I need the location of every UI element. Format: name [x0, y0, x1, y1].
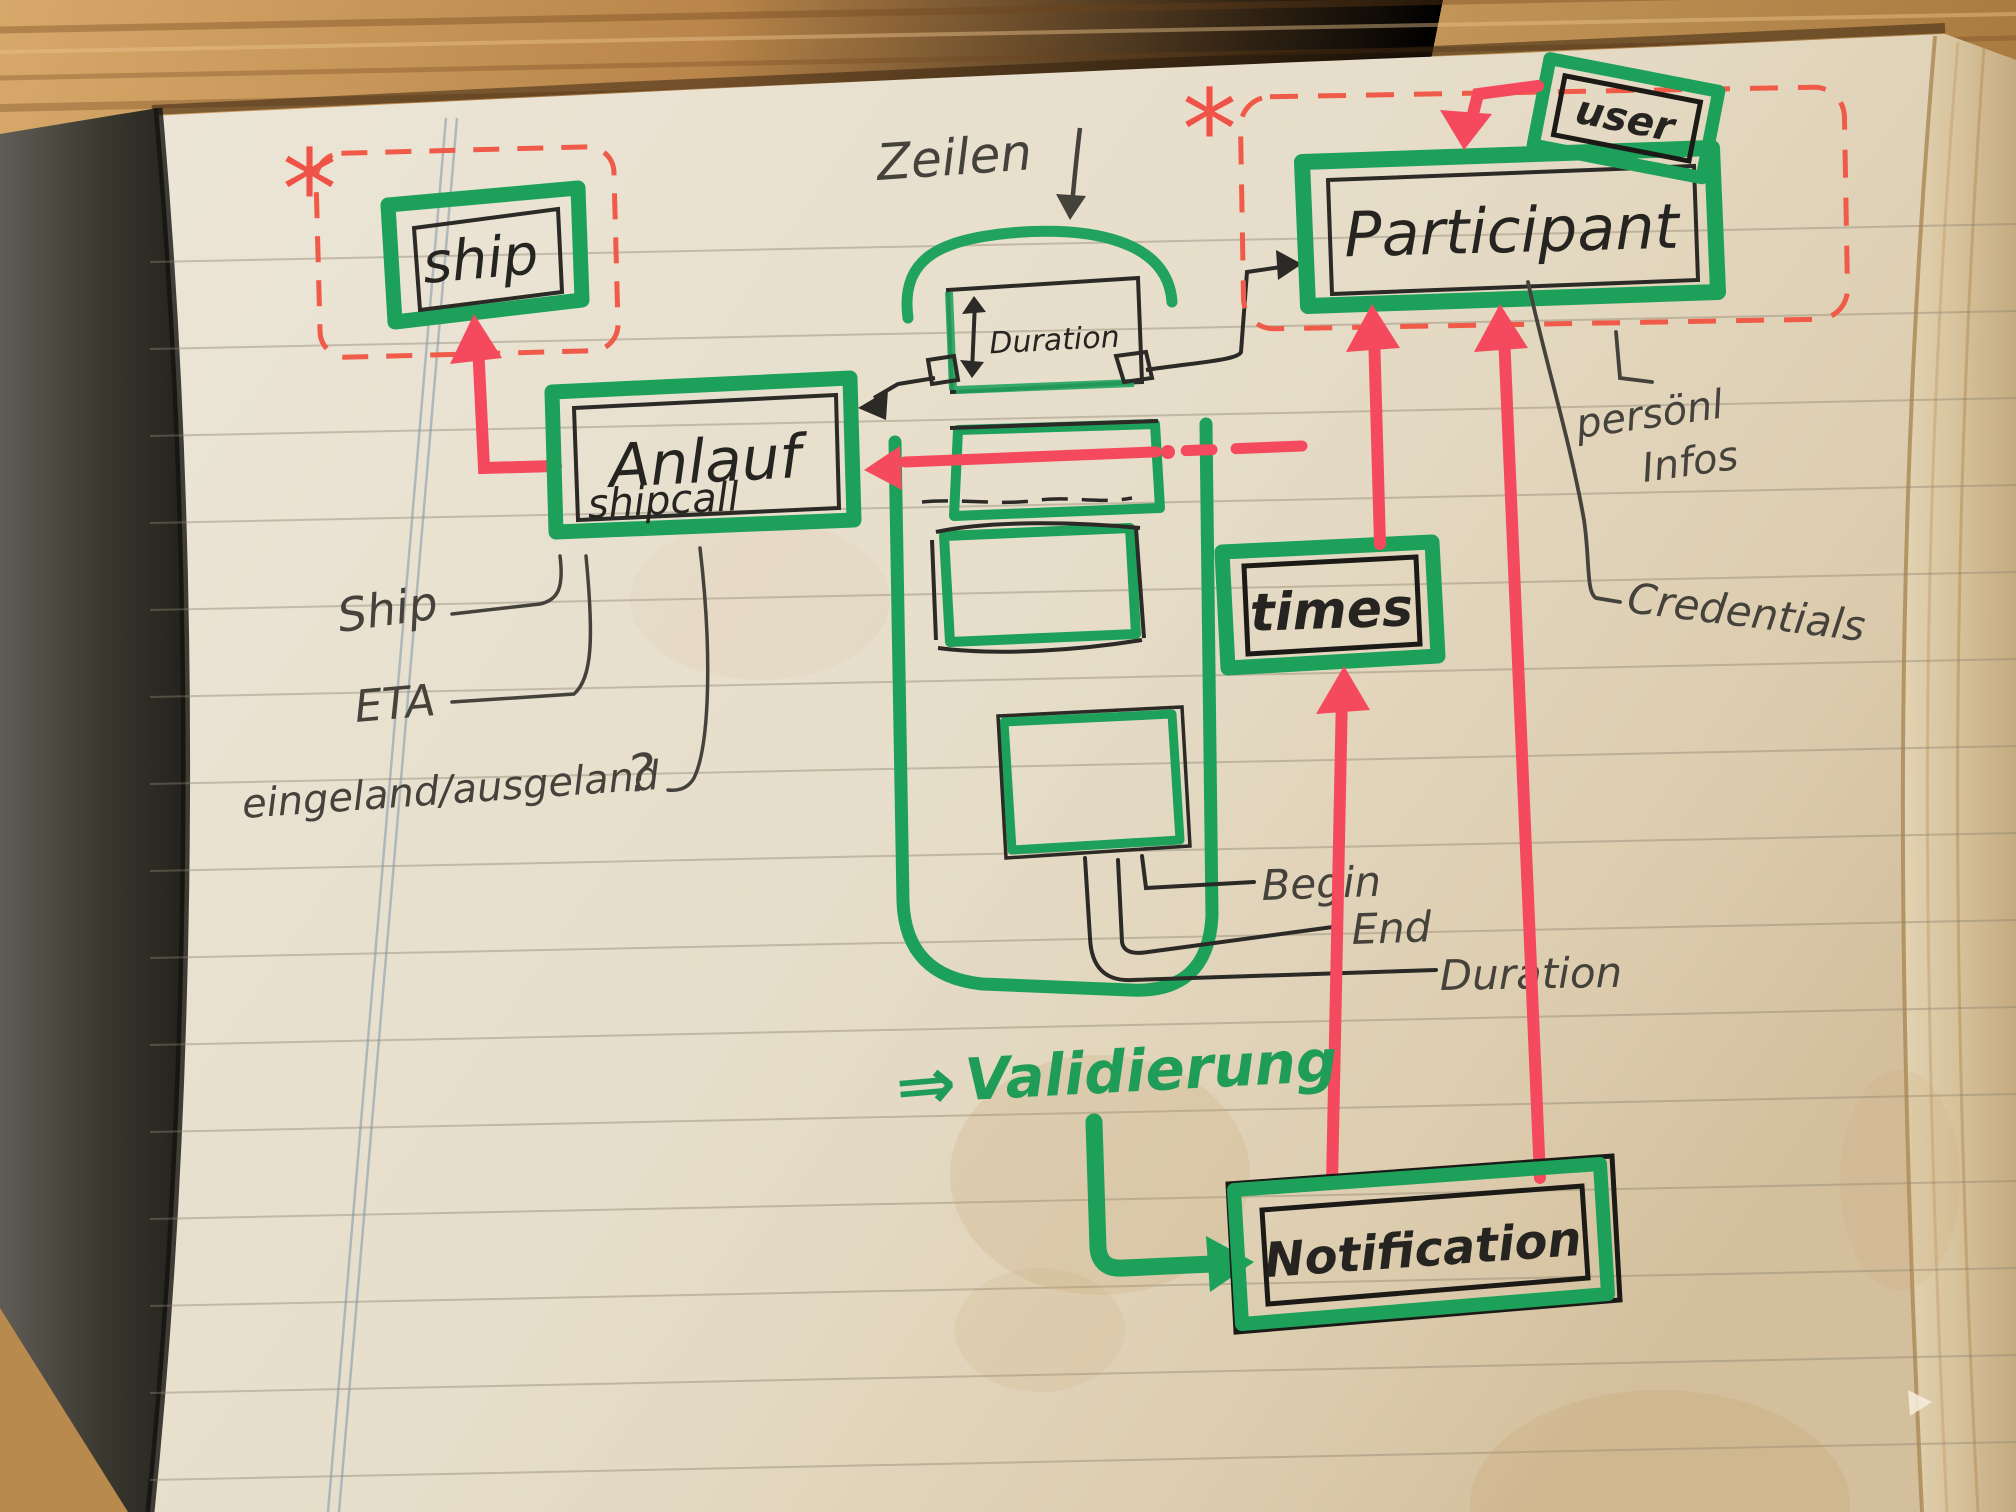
box-times-label: times: [1249, 578, 1414, 644]
box-participant-label: Participant: [1343, 190, 1682, 272]
label-end: End: [1351, 902, 1433, 954]
label-eta: ETA: [353, 675, 438, 733]
label-zeilen: Zeilen: [873, 123, 1034, 192]
sketch-canvas: * ship Anlauf shipcall Ship ETA eingelan…: [0, 0, 2016, 1512]
label-question-mark: ?: [625, 743, 657, 805]
book-cover: [0, 108, 186, 1512]
asterisk-participant: *: [1182, 66, 1237, 194]
asterisk-ship: *: [282, 126, 337, 254]
label-begin: Begin: [1261, 857, 1382, 910]
box-anlauf-sublabel: shipcall: [587, 474, 741, 528]
notebook-photo: * ship Anlauf shipcall Ship ETA eingelan…: [0, 0, 2016, 1512]
box-ship-label: ship: [420, 222, 541, 297]
double-arrow-icon: ⇒: [892, 1040, 959, 1129]
box-duration-label: Duration: [989, 320, 1121, 362]
